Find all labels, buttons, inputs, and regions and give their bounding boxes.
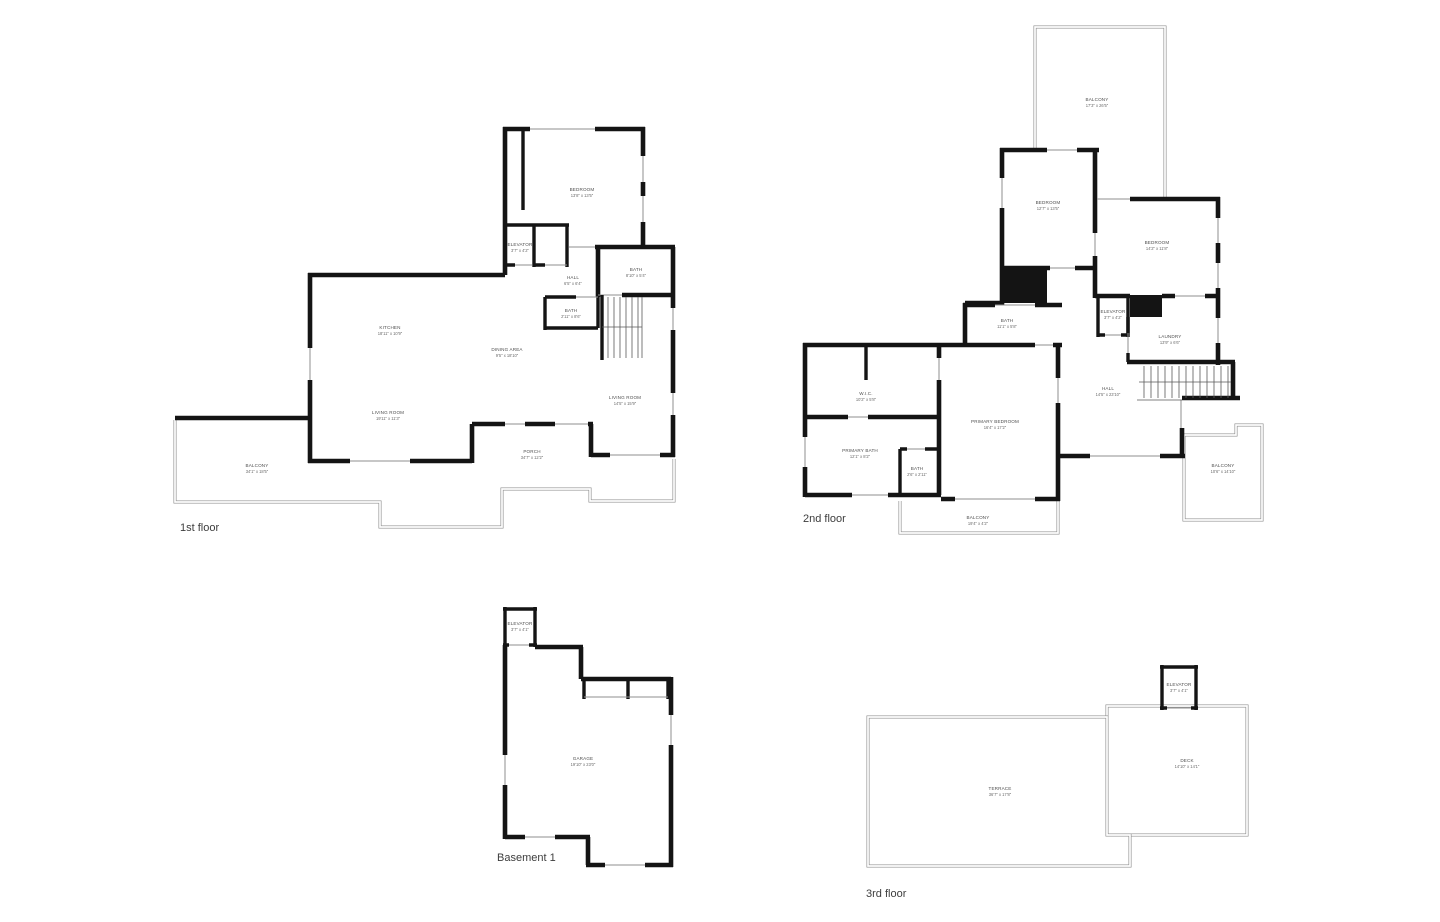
- floor-title-basement: Basement 1: [497, 852, 556, 864]
- room-dims-balcony-top-2f: 17'3" x 26'5": [1086, 103, 1109, 108]
- room-dims-bath2-1f: 2'11" x 8'6": [561, 314, 581, 319]
- room-dims-porch-1f: 34'7" x 12'2": [521, 455, 544, 460]
- room-name-balcony-top-2f: BALCONY: [1085, 97, 1108, 102]
- floor-title-2nd: 2nd floor: [803, 513, 846, 525]
- room-name-deck-3f: DECK: [1180, 758, 1194, 763]
- room-dims-dining-1f: 9'5" x 18'10": [496, 353, 519, 358]
- room-dims-balcony-bottom-2f: 19'4" x 4'2": [968, 521, 989, 526]
- room-dims-elevator-3f: 3'7" x 4'1": [1170, 688, 1188, 693]
- room-dims-elevator-2f: 3'7" x 4'2": [1104, 315, 1122, 320]
- room-dims-bath2-2f: 2'6" x 2'11": [907, 472, 927, 477]
- walls-basement: [503, 607, 673, 867]
- room-name-balcony-1f: BALCONY: [245, 463, 268, 468]
- room-dims-bedroom1-2f: 12'7" x 13'5": [1037, 206, 1060, 211]
- floorplan-page: BEDROOM 13'8" x 13'5" ELEVATOR 3'7" x 4'…: [0, 0, 1440, 922]
- room-name-elevator-3f: ELEVATOR: [1167, 682, 1192, 687]
- room-labels-1st-floor: BEDROOM 13'8" x 13'5" ELEVATOR 3'7" x 4'…: [245, 187, 646, 474]
- stairs-1st-floor: [602, 297, 642, 358]
- stairs-2nd-floor: [1137, 366, 1231, 400]
- room-name-primary-bedroom-2f: PRIMARY BEDROOM: [971, 419, 1019, 424]
- room-name-dining-1f: DINING AREA: [491, 347, 523, 352]
- room-dims-balcony-1f: 34'1" x 18'5": [246, 469, 269, 474]
- room-name-wic-2f: W.I.C.: [859, 391, 872, 396]
- room-name-laundry-2f: LAUNDRY: [1159, 334, 1182, 339]
- chimney-block-left: [1002, 270, 1047, 303]
- room-dims-primary-bath-2f: 12'1" x 8'2": [850, 454, 871, 459]
- room-name-living2-1f: LIVING ROOM: [609, 395, 641, 400]
- room-name-elevator-2f: ELEVATOR: [1101, 309, 1126, 314]
- room-name-bedroom-1f: BEDROOM: [570, 187, 595, 192]
- room-name-terrace-3f: TERRACE: [988, 786, 1011, 791]
- room-dims-hall-2f: 14'5" x 23'10": [1096, 392, 1121, 397]
- room-name-garage-b1: GARAGE: [573, 756, 594, 761]
- room-dims-terrace-3f: 36'7" x 17'8": [989, 792, 1012, 797]
- chimney-block-right: [1130, 295, 1162, 317]
- room-dims-deck-3f: 14'10" x 14'1": [1175, 764, 1200, 769]
- room-dims-laundry-2f: 13'9" x 6'6": [1160, 340, 1181, 345]
- room-labels-3rd-floor: ELEVATOR 3'7" x 4'1" DECK 14'10" x 14'1"…: [988, 682, 1199, 797]
- room-dims-bath1-1f: 8'10" x 5'4": [626, 273, 647, 278]
- room-dims-living2-1f: 14'5" x 15'9": [614, 401, 637, 406]
- room-name-porch-1f: PORCH: [523, 449, 540, 454]
- room-dims-bedroom2-2f: 14'2" x 11'8": [1146, 246, 1169, 251]
- room-dims-bath1-2f: 11'1" x 5'8": [997, 324, 1017, 329]
- room-dims-hall-1f: 6'5" x 6'4": [564, 281, 582, 286]
- room-name-bath2-2f: BATH: [911, 466, 924, 471]
- room-dims-primary-bedroom-2f: 16'4" x 17'2": [984, 425, 1007, 430]
- floorplan-2nd-floor: BALCONY 17'3" x 26'5" BEDROOM 12'7" x 13…: [795, 18, 1275, 540]
- room-dims-wic-2f: 10'2" x 5'8": [856, 397, 877, 402]
- room-name-balcony-bottom-2f: BALCONY: [966, 515, 989, 520]
- room-name-hall-2f: HALL: [1102, 386, 1114, 391]
- room-name-elevator-b1: ELEVATOR: [508, 621, 533, 626]
- room-name-balcony-right-2f: BALCONY: [1211, 463, 1234, 468]
- room-dims-balcony-right-2f: 10'6" x 14'10": [1211, 469, 1236, 474]
- room-dims-elevator-b1: 3'7" x 4'1": [511, 627, 529, 632]
- room-dims-bedroom-1f: 13'8" x 13'5": [571, 193, 594, 198]
- room-name-kitchen-1f: KITCHEN: [379, 325, 400, 330]
- room-name-bedroom1-2f: BEDROOM: [1036, 200, 1061, 205]
- room-name-bath1-2f: BATH: [1001, 318, 1014, 323]
- room-dims-garage-b1: 19'10" x 23'0": [571, 762, 596, 767]
- floorplan-basement-1: ELEVATOR 3'7" x 4'1" GARAGE 19'10" x 23'…: [495, 600, 690, 875]
- floor-title-1st: 1st floor: [180, 522, 219, 534]
- room-name-primary-bath-2f: PRIMARY BATH: [842, 448, 878, 453]
- floorplan-1st-floor: BEDROOM 13'8" x 13'5" ELEVATOR 3'7" x 4'…: [170, 118, 690, 543]
- room-dims-elevator-1f: 3'7" x 4'2": [511, 248, 529, 253]
- floorplan-3rd-floor: ELEVATOR 3'7" x 4'1" DECK 14'10" x 14'1"…: [862, 660, 1262, 905]
- room-name-living1-1f: LIVING ROOM: [372, 410, 404, 415]
- room-dims-living1-1f: 19'11" x 11'3": [376, 416, 401, 421]
- room-name-bedroom2-2f: BEDROOM: [1145, 240, 1170, 245]
- room-name-hall-1f: HALL: [567, 275, 579, 280]
- terrace-deck-outline-3rd: [868, 706, 1247, 866]
- room-dims-kitchen-1f: 18'11" x 10'9": [378, 331, 403, 336]
- room-name-bath2-1f: BATH: [565, 308, 578, 313]
- walls-1st-floor: [175, 127, 675, 463]
- floor-title-3rd: 3rd floor: [866, 888, 906, 900]
- room-name-elevator-1f: ELEVATOR: [508, 242, 533, 247]
- room-name-bath1-1f: BATH: [630, 267, 643, 272]
